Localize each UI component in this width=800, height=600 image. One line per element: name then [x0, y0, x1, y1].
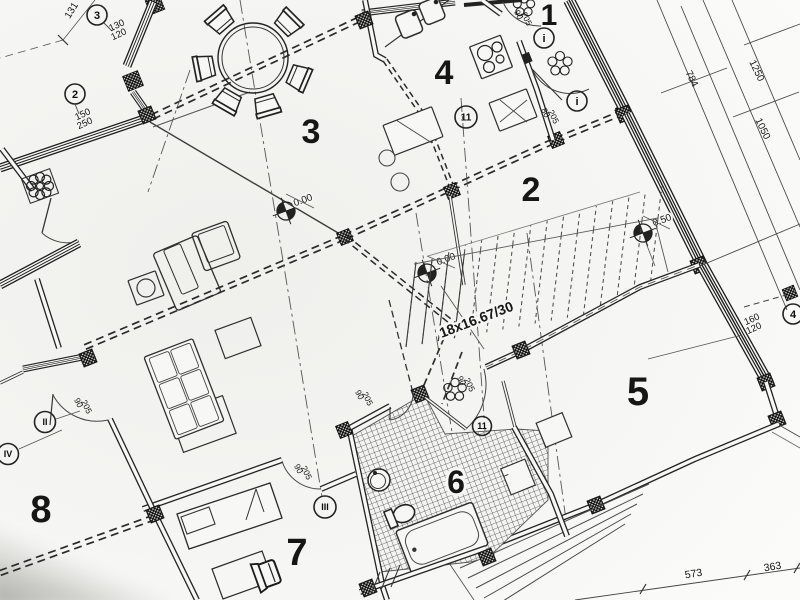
svg-text:3: 3 [302, 113, 321, 151]
svg-text:5: 5 [627, 370, 649, 414]
svg-text:11: 11 [477, 421, 487, 431]
svg-text:11: 11 [461, 113, 472, 124]
svg-text:8: 8 [30, 489, 51, 531]
svg-text:7: 7 [286, 532, 307, 574]
svg-text:6: 6 [447, 464, 465, 500]
svg-text:4: 4 [435, 54, 454, 92]
svg-text:i: i [575, 96, 578, 108]
svg-text:1: 1 [541, 0, 558, 32]
svg-text:IV: IV [4, 449, 13, 459]
svg-text:II: II [42, 417, 47, 427]
svg-text:2: 2 [522, 171, 541, 209]
svg-text:3: 3 [94, 10, 100, 22]
svg-text:4: 4 [790, 309, 797, 321]
svg-text:III: III [321, 502, 329, 512]
svg-text:2: 2 [72, 89, 78, 101]
svg-text:i: i [542, 33, 545, 45]
